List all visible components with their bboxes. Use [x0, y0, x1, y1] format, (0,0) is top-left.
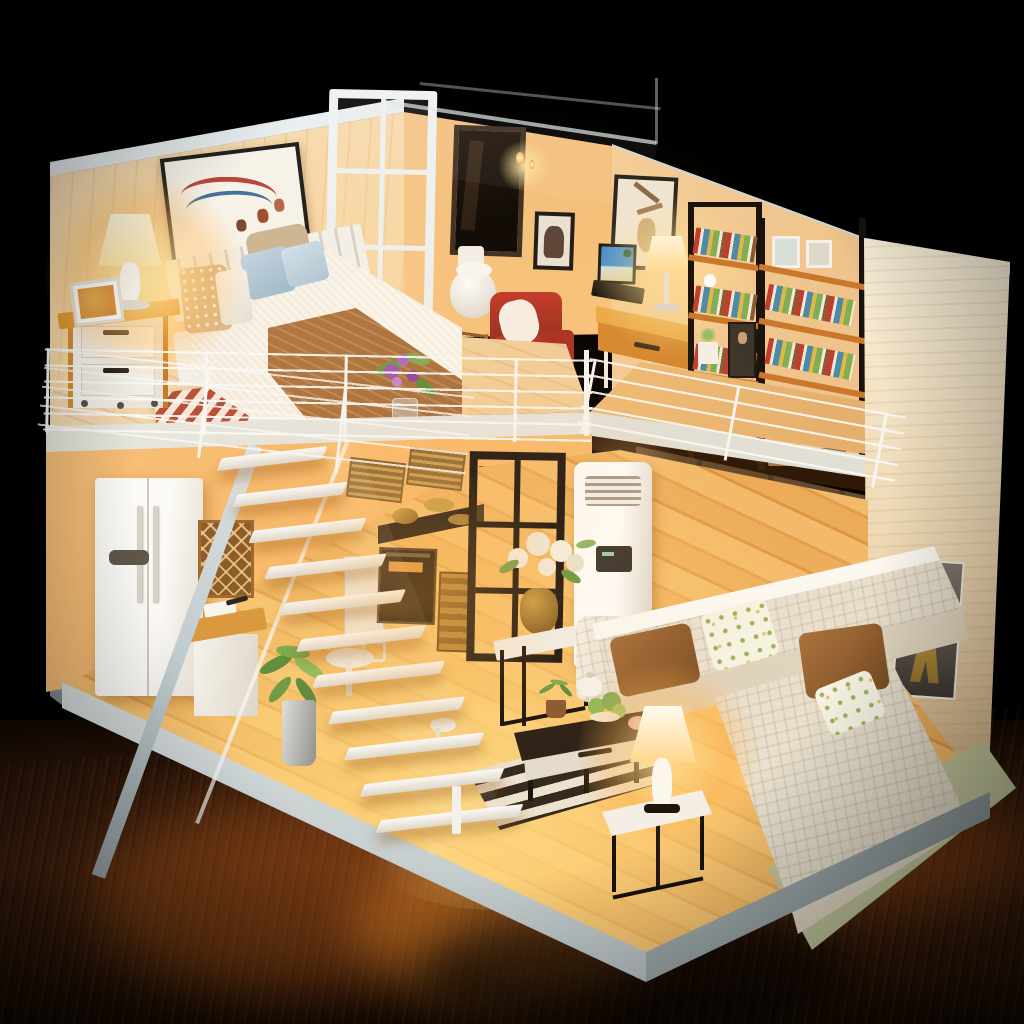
door-bar-1	[477, 521, 557, 528]
white-bowl	[590, 712, 620, 722]
teapot	[578, 676, 602, 696]
plant-stand-leg	[500, 650, 504, 726]
candle-flame-2	[529, 160, 535, 169]
bouquet-bloom	[538, 558, 556, 576]
framed-print-small-1	[772, 236, 800, 268]
white-bird-figurine	[704, 274, 716, 287]
cooking-pot-2	[424, 498, 454, 512]
roof-edge-back	[420, 82, 661, 110]
toilet-seat	[456, 262, 492, 278]
bedside-lamp-shade	[98, 214, 162, 266]
art-deer-1	[257, 208, 270, 223]
oven-display	[389, 561, 423, 572]
stair-newel-post	[452, 786, 461, 834]
dollhouse-photo	[0, 0, 1024, 1024]
fridge-vent-slot	[109, 550, 149, 565]
books-row	[764, 284, 855, 326]
bouquet-bloom	[526, 532, 550, 556]
wooden-table	[0, 720, 1024, 1024]
candle-flame-1	[516, 152, 524, 164]
refrigerator	[95, 478, 203, 696]
bouquet-bloom	[566, 554, 584, 572]
stair-step	[232, 482, 347, 508]
art-antler-stroke-1	[633, 181, 660, 203]
ac-display	[602, 552, 614, 556]
table-plant-pot	[546, 700, 566, 718]
oven-handle	[386, 552, 430, 558]
bedside-photo-frame	[70, 277, 125, 327]
family-photo-frame	[533, 211, 575, 270]
laptop-screen	[597, 243, 636, 284]
art-deer-2	[273, 198, 285, 212]
photo-figures	[543, 226, 564, 259]
eiffel-tower-poster	[891, 558, 964, 700]
art-deer-3	[236, 219, 247, 232]
coffee-table-leg	[528, 779, 533, 801]
living-lamp-ring	[644, 804, 680, 813]
side-table-leg	[700, 812, 704, 870]
bathroom-dark-window	[450, 125, 526, 257]
shelf-plant-pot	[698, 342, 718, 364]
ac-control-panel	[596, 546, 632, 572]
desk-lamp-base	[654, 304, 680, 311]
island-body	[194, 634, 258, 716]
portrait-print	[728, 322, 756, 378]
partition-bar-3	[333, 320, 423, 327]
plant-pot-silver	[282, 700, 316, 766]
floral-pillow-1	[699, 598, 780, 672]
partition-bar-1	[337, 168, 427, 175]
books-row	[764, 338, 855, 380]
living-lamp-base	[652, 758, 672, 808]
laptop-keyboard	[591, 280, 645, 305]
teapot-lid	[586, 672, 594, 678]
roof-corner-edge	[655, 78, 658, 144]
fridge-handle-2	[153, 506, 158, 602]
bedside-lamp-base	[120, 262, 140, 304]
desk-lamp-stem	[664, 272, 669, 306]
shelf-plant-sprig	[698, 328, 718, 342]
side-table-leg	[612, 834, 616, 892]
laptop-palm-tree	[623, 249, 631, 257]
side-table-leg	[656, 824, 660, 888]
living-lamp-shade	[630, 706, 696, 762]
bouquet-vase	[520, 588, 558, 634]
coffee-table-leg	[584, 769, 589, 793]
art-antler-stroke-2	[637, 203, 663, 215]
desk-drawer-handle	[634, 342, 660, 352]
oven	[377, 547, 438, 625]
portrait-face	[738, 332, 747, 344]
white-stool	[430, 718, 456, 732]
window-reflection	[461, 140, 484, 231]
plant-stand-leg	[522, 646, 526, 726]
shelf-top-bar	[688, 202, 762, 207]
fridge-door-split	[147, 478, 149, 696]
ac-vent-grille	[585, 476, 641, 506]
photo-art	[77, 285, 116, 319]
cooking-pot-1	[392, 508, 418, 524]
eiffel-tower-shape	[893, 560, 962, 698]
drawer-handle-1	[103, 330, 129, 335]
framed-print-small-2	[806, 240, 832, 268]
